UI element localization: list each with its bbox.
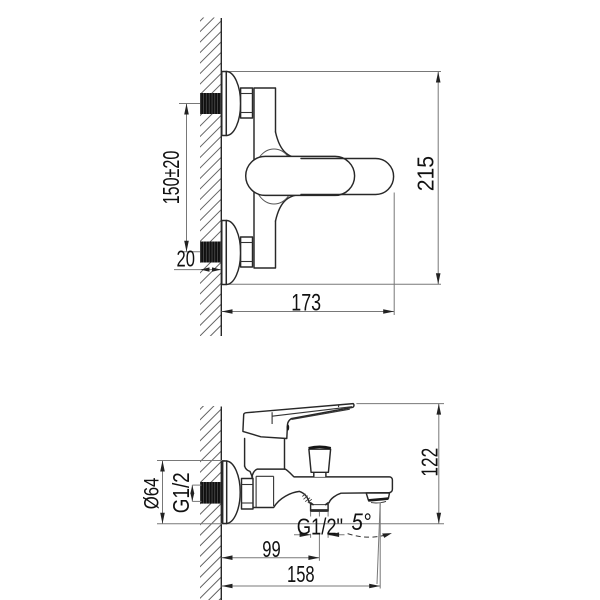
svg-text:122: 122 xyxy=(418,448,443,477)
svg-text:20: 20 xyxy=(177,247,195,272)
svg-text:G1/2": G1/2" xyxy=(297,514,343,539)
svg-text:215: 215 xyxy=(413,156,439,191)
svg-text:G1/2: G1/2 xyxy=(169,472,194,513)
svg-text:Ø64: Ø64 xyxy=(140,477,163,509)
svg-text:150±20: 150±20 xyxy=(159,151,184,205)
svg-text:158: 158 xyxy=(287,562,315,587)
svg-text:173: 173 xyxy=(291,289,321,316)
svg-text:5°: 5° xyxy=(352,508,372,535)
svg-text:99: 99 xyxy=(262,538,280,563)
